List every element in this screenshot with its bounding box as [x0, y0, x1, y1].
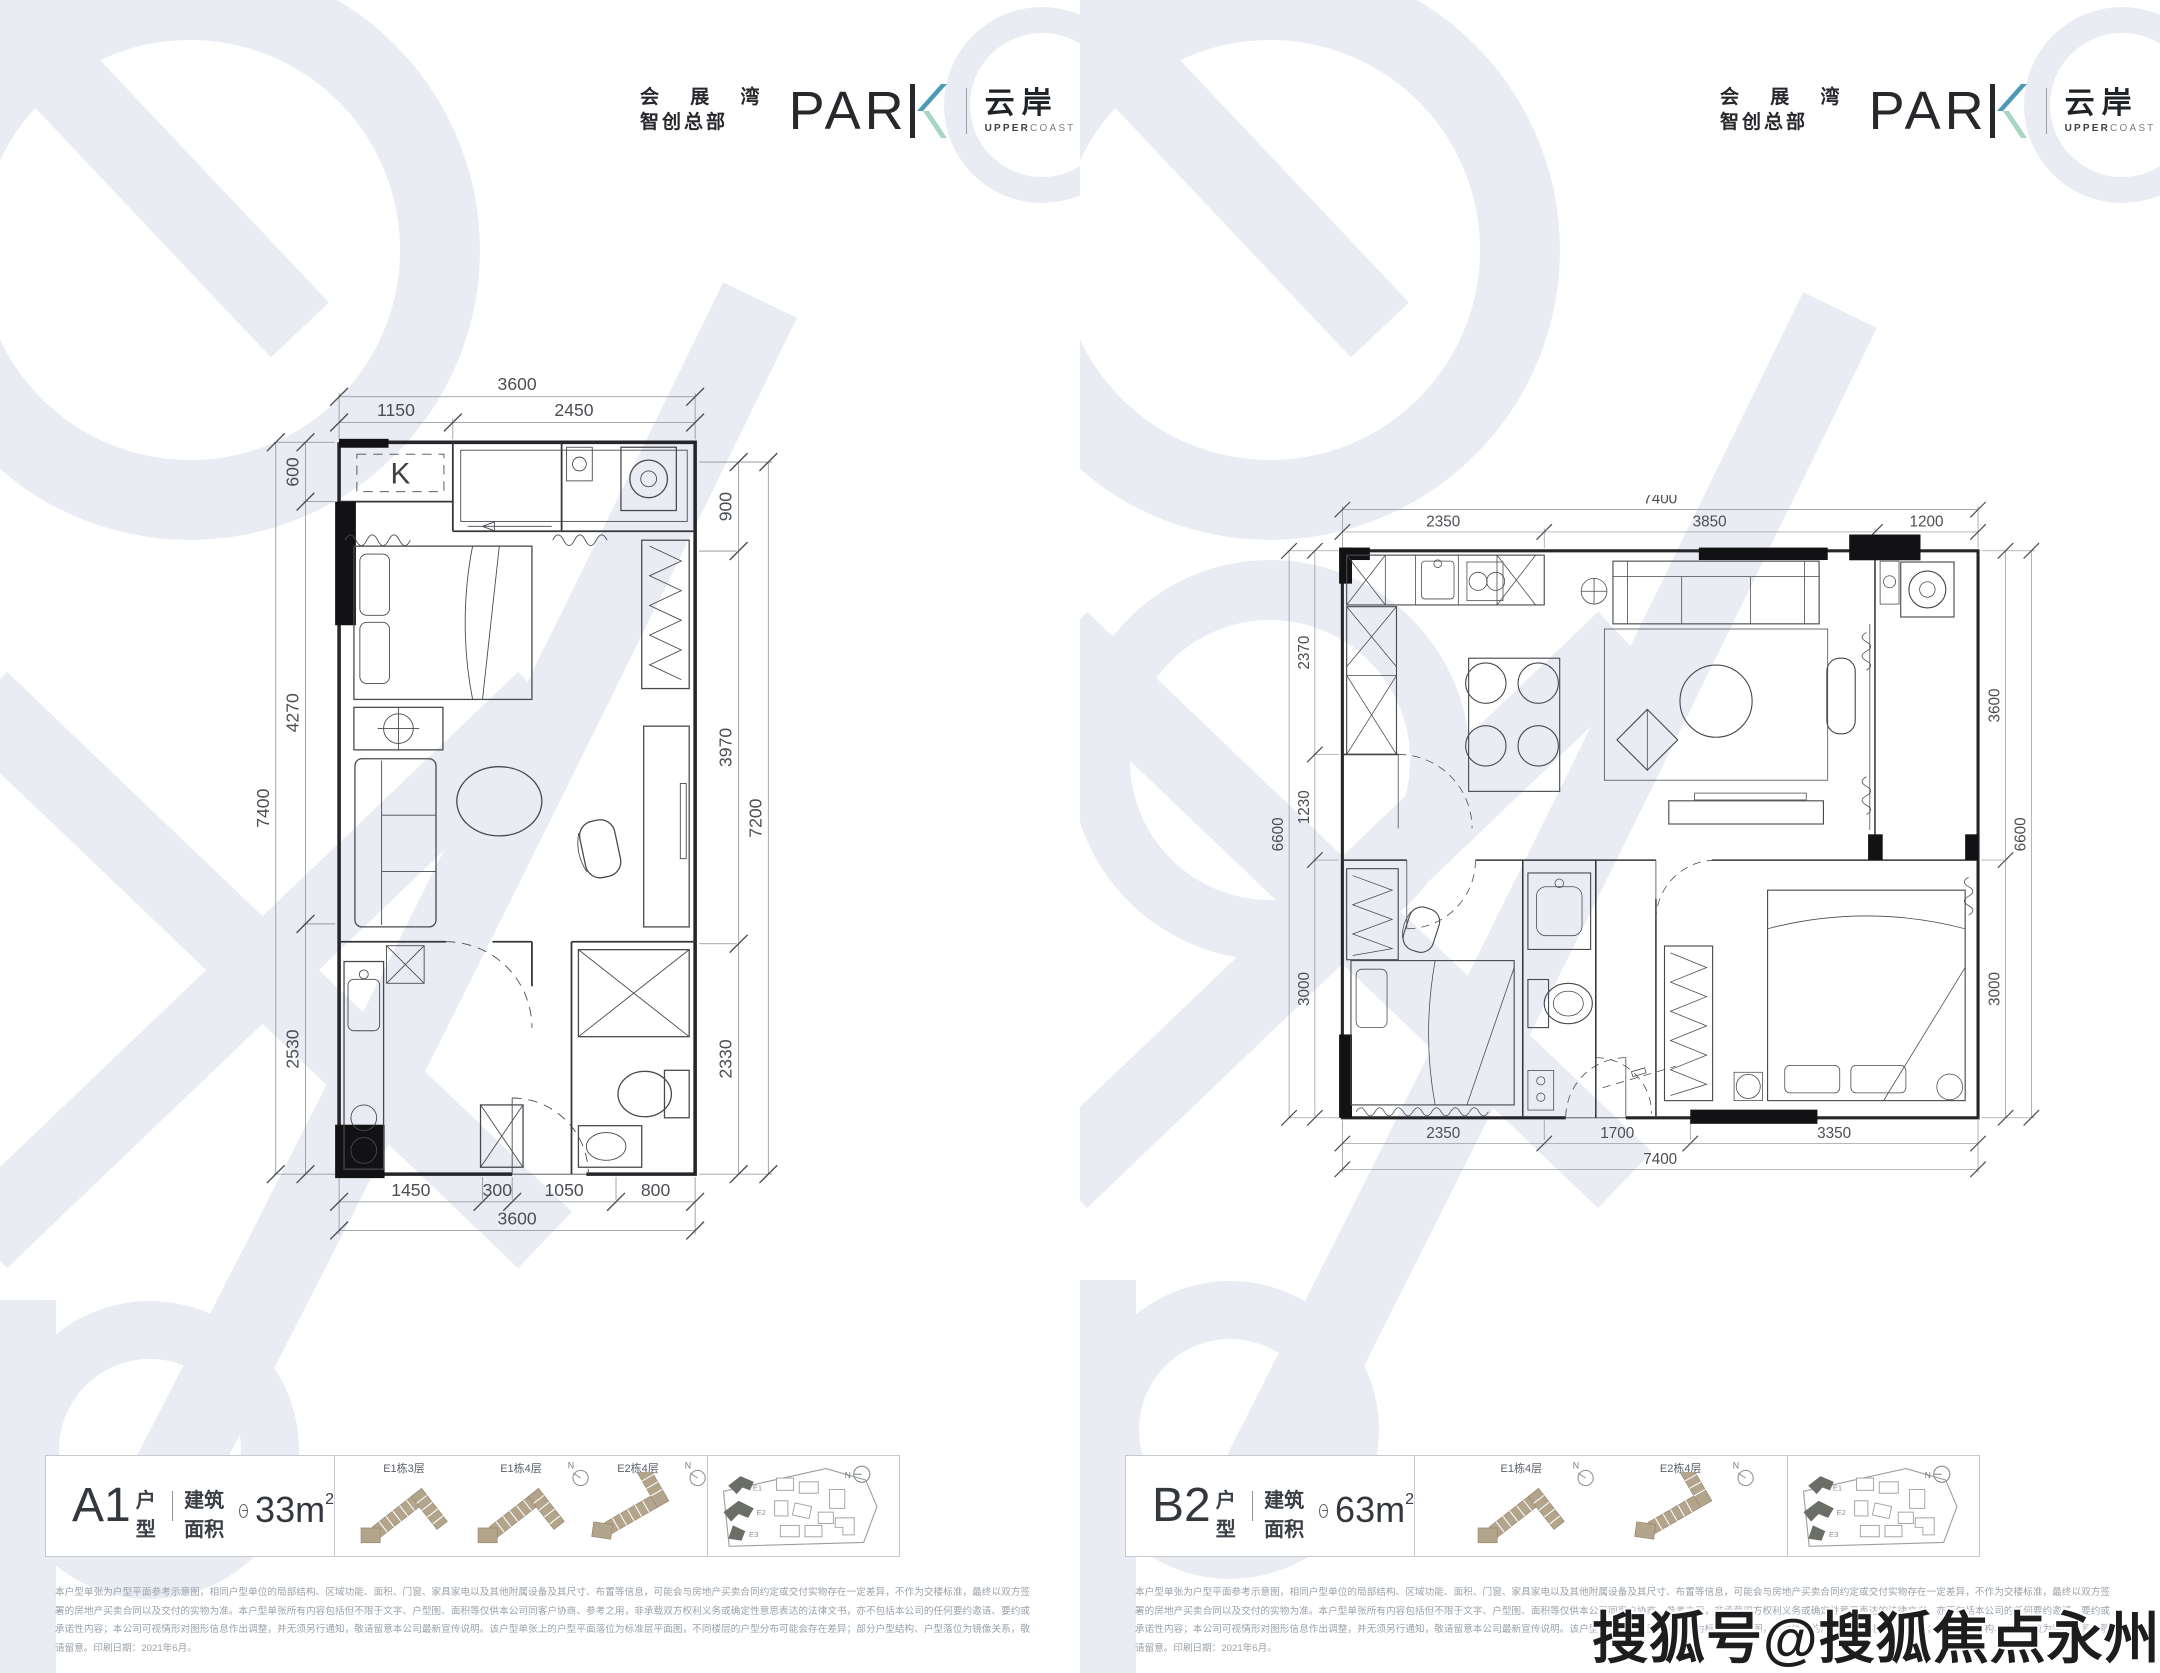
- a1-dim-right-2: 3970: [716, 728, 736, 767]
- dresser: [354, 707, 443, 750]
- round-table: [457, 767, 542, 836]
- sub-brand-en: UPPERCOAST: [985, 124, 1076, 134]
- wall-block: [335, 502, 356, 626]
- compass-n: N: [1924, 1470, 1930, 1480]
- double-bed: [1768, 890, 1966, 1100]
- sub-brand-en-bold: UPPER: [2065, 123, 2110, 134]
- coffee-table: [1680, 665, 1752, 737]
- sub-brand-en-bold: UPPER: [985, 123, 1030, 134]
- siteplan-icon: E1 E2 E3 N: [714, 1461, 894, 1551]
- approx-circle-icon: [1319, 1504, 1328, 1518]
- compass-n: N: [844, 1470, 850, 1480]
- area-label: 建筑面积: [184, 1484, 232, 1542]
- siteplan-section: E1 E2 E3 N: [1787, 1456, 1979, 1556]
- sub-brand-cn: 云岸: [2065, 89, 2156, 119]
- a1-dim-top-total: 3600: [498, 378, 537, 394]
- area-superscript: 2: [325, 1491, 334, 1508]
- title-divider: [1252, 1491, 1253, 1521]
- title-divider: [172, 1491, 173, 1521]
- floorplan-a1: 3600 1150 2450 7400 600 4270 2530 900 39…: [240, 378, 814, 1278]
- flyer-page: 会 展 湾 智创总部 PAR 云岸 UPPERCOAST: [0, 0, 2160, 1673]
- park-letters: PAR: [789, 84, 908, 138]
- a1-dim-right-total: 7200: [745, 798, 765, 837]
- unit-type-label: 户型: [136, 1484, 160, 1542]
- unit-title-b2: B2 户型 建筑面积 63m2: [1126, 1456, 1414, 1556]
- b2-dim-right-2: 3000: [1987, 972, 2004, 1006]
- a1-dim-right-1: 900: [716, 492, 736, 522]
- ceiling-fixture: [1581, 578, 1607, 604]
- area-number: 33m: [255, 1489, 325, 1530]
- locator-e1-4f: E1栋4层 N: [467, 1460, 575, 1552]
- park-k-icon: [910, 84, 948, 138]
- brand-line2: 智创总部: [1720, 111, 1853, 136]
- a1-dim-bottom-3: 1050: [545, 1180, 584, 1200]
- desk: [644, 726, 689, 927]
- park-letters: PAR: [1869, 84, 1988, 138]
- wardrobe: [1347, 869, 1399, 960]
- b2-dim-bottom-1: 2350: [1426, 1125, 1460, 1142]
- door-swing: [1407, 860, 1716, 1118]
- washing-machine: [1880, 561, 1954, 617]
- area-label: 建筑面积: [1264, 1484, 1312, 1542]
- master-wardrobe: [1665, 946, 1713, 1101]
- wall-block: [335, 1125, 384, 1178]
- area-value: 33m2: [255, 1492, 334, 1528]
- a1-dim-bottom-2: 300: [483, 1180, 513, 1200]
- compass-n: N: [1573, 1460, 1579, 1470]
- a1-k-label: K: [391, 457, 411, 490]
- b2-dim-left-2: 1230: [1296, 790, 1313, 824]
- unit-code: A1: [72, 1482, 131, 1530]
- b2-dim-left-1: 2370: [1296, 636, 1313, 670]
- screen-hatch: [345, 535, 607, 546]
- lounge-chair: [1617, 709, 1678, 770]
- wardrobe: [642, 540, 689, 688]
- b2-dim-bottom-3: 3350: [1817, 1125, 1851, 1142]
- brand-logo: 会 展 湾 智创总部 PAR 云岸 UPPERCOAST: [1720, 84, 2156, 138]
- a1-dim-bottom-4: 800: [641, 1180, 671, 1200]
- site-e1: E1: [752, 1483, 761, 1492]
- brand-logo: 会 展 湾 智创总部 PAR 云岸 UPPERCOAST: [640, 84, 1076, 138]
- a1-dim-top-1: 1150: [377, 400, 415, 420]
- panel-b2: 会 展 湾 智创总部 PAR 云岸 UPPERCOAST: [1080, 0, 2160, 1673]
- compass-n: N: [568, 1460, 574, 1470]
- site-e3: E3: [749, 1530, 758, 1539]
- b2-dim-bottom-2: 1700: [1600, 1125, 1634, 1142]
- door-swing: [1398, 754, 1472, 828]
- north-compass-icon: N: [684, 1458, 708, 1490]
- bathroom-vanity: [1528, 873, 1591, 949]
- approx-circle-icon: [239, 1504, 248, 1518]
- building-footprint-icon: [1622, 1472, 1740, 1552]
- building-footprint-icon: [1462, 1472, 1580, 1552]
- unit-info-bar-b2: B2 户型 建筑面积 63m2 E1栋4层: [1125, 1455, 1980, 1557]
- stool: [1734, 1072, 1762, 1100]
- desk-chair: [573, 817, 624, 881]
- a1-dim-left-2: 4270: [283, 693, 303, 732]
- sliding-door-arrow: [468, 522, 552, 531]
- unit-info-bar-a1: A1 户型 建筑面积 33m2 E1栋3层: [45, 1455, 900, 1557]
- toilet: [618, 1070, 689, 1117]
- b2-dim-top-total: 7400: [1643, 495, 1677, 508]
- brand-chinese: 会 展 湾 智创总部: [1720, 86, 1853, 135]
- wall-block: [339, 439, 388, 448]
- park-k-icon: [1990, 84, 2028, 138]
- sofa: [1613, 561, 1819, 624]
- floor-locators-b2: E1栋4层 N: [1414, 1456, 1787, 1556]
- site-e3: E3: [1829, 1530, 1838, 1539]
- b2-dim-bottom-total: 7400: [1643, 1151, 1677, 1168]
- a1-dim-right-3: 2330: [716, 1039, 736, 1078]
- a1-dim-bottom-total: 3600: [498, 1209, 537, 1229]
- compass-n: N: [685, 1460, 691, 1470]
- a1-dim-left-1: 600: [283, 457, 303, 487]
- logo-divider: [2046, 88, 2047, 134]
- area-superscript: 2: [1405, 1491, 1414, 1508]
- b2-dim-top-1: 2350: [1426, 513, 1460, 530]
- rug: [1604, 629, 1827, 780]
- sub-brand-en: UPPERCOAST: [2065, 124, 2156, 134]
- north-compass-icon: N: [1732, 1458, 1756, 1490]
- screen-hatch: [1356, 1108, 1488, 1116]
- dim-lines: [1289, 510, 2031, 1170]
- site-e1: E1: [1832, 1483, 1841, 1492]
- locator-e2-4f: E2栋4层 N: [1622, 1460, 1740, 1552]
- kitchen-counter: [1347, 555, 1545, 754]
- ac-unit-box: K: [357, 454, 444, 492]
- shoe-cabinet: [1528, 1071, 1554, 1111]
- b2-dim-left-3: 3000: [1296, 972, 1313, 1006]
- b2-dim-top-2: 3850: [1693, 513, 1727, 530]
- siteplan-icon: E1 E2 E3 N: [1794, 1461, 1974, 1551]
- siteplan-section: E1 E2 E3 N: [707, 1456, 899, 1556]
- bed: [354, 546, 532, 699]
- brand-chinese: 会 展 湾 智创总部: [640, 86, 773, 135]
- locator-e1-4f: E1栋4层 N: [1462, 1460, 1580, 1552]
- sub-brand: 云岸 UPPERCOAST: [2065, 89, 2156, 134]
- unit-code: B2: [1152, 1482, 1211, 1530]
- locator-e2-4f: E2栋4层 N: [584, 1460, 692, 1552]
- sub-brand-en-light: COAST: [1030, 123, 1075, 134]
- toilet: [1528, 979, 1592, 1027]
- floor-locators-a1: E1栋3层 E1栋4层: [334, 1456, 707, 1556]
- park-wordmark: PAR: [1869, 84, 2028, 138]
- bathroom-sink: [578, 1126, 641, 1168]
- screen-hatch: [1862, 632, 1973, 915]
- site-e2: E2: [756, 1508, 765, 1517]
- dining-set: [1466, 658, 1560, 791]
- b2-dim-top-3: 1200: [1910, 513, 1944, 530]
- a1-dim-left-3: 2530: [283, 1029, 303, 1068]
- brand-line1: 会 展 湾: [640, 86, 773, 111]
- park-wordmark: PAR: [789, 84, 948, 138]
- site-e2: E2: [1836, 1508, 1845, 1517]
- disclaimer-text: 本户型单张为户型平面参考示意图，相同户型单位的局部结构、区域功能、面积、门窗、家…: [55, 1584, 1030, 1659]
- b2-dim-right-total: 6600: [2012, 817, 2029, 851]
- brand-line1: 会 展 湾: [1720, 86, 1853, 111]
- single-bed: [1351, 961, 1514, 1105]
- building-footprint-icon: [467, 1472, 575, 1552]
- desk-chair: [1397, 903, 1443, 956]
- sohu-watermark: 搜狐号@搜狐焦点永州站: [1592, 1594, 2160, 1673]
- area-number: 63m: [1335, 1489, 1405, 1530]
- dim-ticks: [1281, 502, 2039, 1177]
- wall-blocks: [1339, 535, 1978, 1124]
- b2-dim-right-1: 3600: [1987, 688, 2004, 722]
- extension-lines: [1287, 506, 2034, 1173]
- door-swing: [446, 942, 588, 1174]
- compass-n: N: [1732, 1460, 1738, 1470]
- building-footprint-icon: [350, 1472, 458, 1552]
- shower: [578, 950, 689, 1037]
- washing-machine: [567, 447, 677, 510]
- unit-title-a1: A1 户型 建筑面积 33m2: [46, 1456, 334, 1556]
- building-footprint-icon: [584, 1472, 692, 1552]
- north-compass-icon: N: [1572, 1458, 1596, 1490]
- sub-brand-cn: 云岸: [985, 89, 1076, 119]
- panel-a1: 会 展 湾 智创总部 PAR 云岸 UPPERCOAST: [0, 0, 1080, 1673]
- entry-closet: [481, 1105, 524, 1167]
- brand-line2: 智创总部: [640, 111, 773, 136]
- sub-brand: 云岸 UPPERCOAST: [985, 89, 1076, 134]
- unit-type-label: 户型: [1216, 1484, 1240, 1542]
- tv-console: [1669, 793, 1824, 824]
- sub-brand-en-light: COAST: [2110, 123, 2155, 134]
- logo-divider: [966, 88, 967, 134]
- floorplan-b2: 7400 2350 3850 1200 6600 2370 1230 3000 …: [1222, 495, 2107, 1208]
- a1-dim-top-2: 2450: [554, 400, 593, 420]
- side-bench: [1827, 658, 1855, 734]
- door-leaf: [1407, 860, 1656, 1118]
- a1-dim-left-total: 7400: [253, 788, 273, 827]
- b2-dim-left-total: 6600: [1270, 817, 1287, 851]
- sofa: [355, 759, 436, 927]
- a1-dim-bottom-1: 1450: [391, 1180, 430, 1200]
- locator-e1-3f: E1栋3层: [350, 1460, 458, 1552]
- area-value: 63m2: [1335, 1492, 1414, 1528]
